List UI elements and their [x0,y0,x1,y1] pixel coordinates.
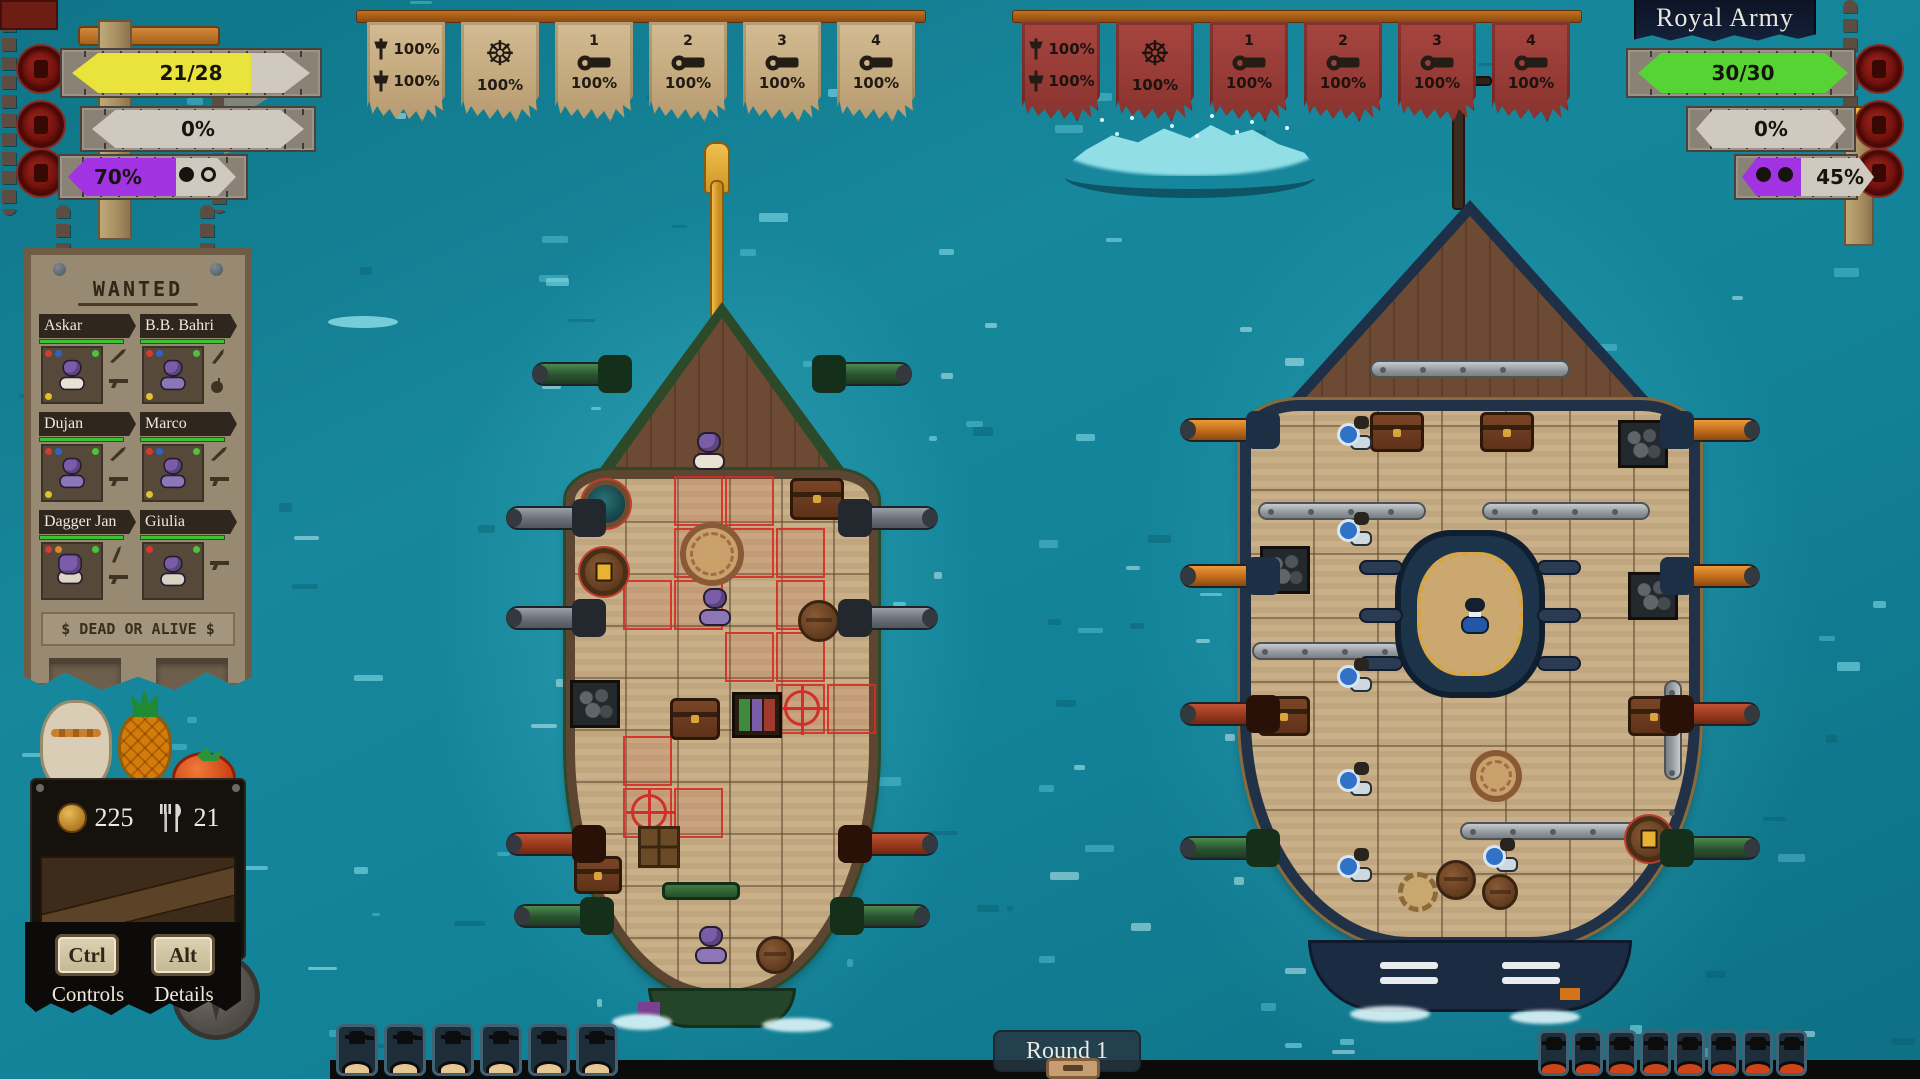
enemy-starboard-cannon[interactable] [1664,698,1760,730]
small-splash [328,316,398,328]
sword-icon [108,446,130,462]
club-icon [108,544,130,564]
enemy-crew-slot[interactable] [1538,1030,1569,1076]
starboard-cannon[interactable] [842,602,938,634]
ship-stern [1308,940,1632,1012]
enemy-port-cannon[interactable] [1180,560,1276,592]
starboard-cannon[interactable] [834,900,930,932]
enemy-crew-slot[interactable] [1572,1030,1603,1076]
highlight-cell[interactable] [725,476,774,526]
enemy-crew-member[interactable] [1342,762,1372,796]
helm-icon: ☸ [1140,34,1170,74]
highlight-cell[interactable] [623,736,672,786]
crew-portrait [41,346,103,404]
hourglass-icon: ⧗ [184,680,199,706]
enemy-crew-slot[interactable] [1674,1030,1705,1076]
highlight-cell[interactable] [674,476,723,526]
foam [612,1014,672,1030]
barrel [798,600,840,642]
foam [1510,1010,1580,1024]
rope-coil [1398,872,1438,912]
enemy-crew-slot[interactable] [1606,1030,1637,1076]
crew-card-daggerjan[interactable]: Dagger Jan [39,510,136,602]
highlight-cell[interactable] [725,632,774,682]
coin-icon [57,803,87,833]
bow-cannon[interactable] [816,358,912,390]
coal-bin [570,680,620,728]
enemy-port-cannon[interactable] [1180,414,1276,446]
helm-banner[interactable]: ☸ 100% [461,22,539,122]
enemy-boarding-bar: 45% [1742,158,1874,196]
title-underline [78,303,198,306]
sails-banner[interactable]: 100% 100% [367,22,445,122]
cannon1-banner[interactable]: 1 100% [1210,22,1288,122]
starboard-cannon[interactable] [842,502,938,534]
dead-or-alive-banner: $ DEAD OR ALIVE $ [41,612,235,646]
cannon-icon [858,50,894,72]
player-boarding-bar: 70% [68,158,236,196]
coin-count: 225 [95,803,134,833]
green-bench [662,882,740,900]
sail-seal-icon [1856,102,1902,148]
details-label: Details [129,982,239,1007]
pistol-icon [108,572,130,586]
enemy-starboard-cannon[interactable] [1664,414,1760,446]
ctrl-key[interactable]: Ctrl [55,934,119,976]
alt-key[interactable]: Alt [151,934,215,976]
helm-station[interactable] [1395,530,1545,698]
attack-target-icon[interactable] [631,794,667,830]
capstan [680,522,744,586]
banner-pole [356,10,926,23]
cannon-icon [670,50,706,72]
bookshelf [732,692,782,738]
player-ship [552,140,892,1035]
sword-icon [209,446,231,462]
food-icon [160,802,186,834]
attack-target-icon[interactable] [784,690,820,726]
enemy-faction-title: Royal Army [1656,0,1794,36]
pistol-icon [209,558,231,572]
sail-seal-icon [18,102,64,148]
metal-walkway [1482,502,1650,520]
wanted-poster: WANTED Askar B.B. Bahri [24,248,252,690]
foam [762,1018,832,1032]
barrel [756,936,794,974]
cannon1-banner[interactable]: 1 100% [555,22,633,122]
crew-portrait [142,542,204,600]
pineapple [118,712,172,782]
crew-health-bar [39,339,124,344]
crew-health-bar [39,437,124,442]
crew-card-askar[interactable]: Askar [39,314,136,406]
cannon2-banner[interactable]: 2 100% [649,22,727,122]
crew-health-bar [39,535,124,540]
starboard-cannon[interactable] [842,828,938,860]
knife-icon [209,348,231,366]
cannon-icon [764,50,800,72]
cannon2-banner[interactable]: 2 100% [1304,22,1382,122]
crew-slot[interactable] [480,1024,522,1076]
crew-portrait [142,444,204,502]
stern-flag [1560,988,1580,1000]
highlight-cell[interactable] [827,684,876,734]
charge-pip-filled [1756,167,1771,182]
bomb-icon [209,376,231,394]
charge-pip-filled [1778,167,1793,182]
stern-ladder [1502,962,1560,984]
helm-banner[interactable]: ☸ 100% [1116,22,1194,122]
chest [1480,412,1534,452]
space-key-button[interactable] [1046,1058,1100,1079]
enemy-ship [1230,60,1710,1045]
charge-pip-empty [201,167,216,182]
enemy-crew-member[interactable] [1342,658,1372,692]
enemy-crew-slot[interactable] [1640,1030,1671,1076]
cannon4-banner[interactable]: 4 100% [837,22,915,122]
enemy-crew-member[interactable] [1488,838,1518,872]
food-count: 21 [194,803,220,833]
sword-icon [108,348,130,364]
enemy-crew-slot[interactable] [1708,1030,1739,1076]
enemy-crew-member[interactable] [1342,512,1372,546]
bow-cannon[interactable] [532,358,628,390]
hull-seal-icon [1856,46,1902,92]
crew-slot[interactable] [432,1024,474,1076]
pistol-icon [209,474,231,488]
port-cannon[interactable] [506,502,602,534]
chain [56,205,70,253]
crew-portrait [142,346,204,404]
highlight-cell[interactable] [674,788,723,838]
cannon4-banner[interactable]: 4 100% [1492,22,1570,122]
cannon-icon [1513,50,1549,72]
enemy-starboard-cannon[interactable] [1664,560,1760,592]
chest [790,478,844,520]
barrel [1436,860,1476,900]
enemy-port-cannon[interactable] [1180,698,1276,730]
crew-card-marco[interactable]: Marco [140,412,237,504]
crew-member[interactable] [698,588,732,626]
pistol-icon [108,376,130,390]
crew-member[interactable] [692,432,726,470]
hull-seal-icon [18,46,64,92]
highlight-cell[interactable] [776,528,825,578]
stern-ladder [1380,962,1438,984]
crew-health-bar [140,535,225,540]
enemy-captain[interactable] [1459,598,1491,634]
crew-slot[interactable] [528,1024,570,1076]
bolt-icon [53,263,66,276]
battle-scene: 21/28 0% 70% 100% 100% ☸ 100% 1 100% [0,0,1920,1079]
crew-slot[interactable] [576,1024,618,1076]
cannon3-banner[interactable]: 3 100% [1398,22,1476,122]
port-cannon[interactable] [506,828,602,860]
crew-member[interactable] [694,926,728,964]
crew-portrait [41,444,103,502]
pistol-icon [108,474,130,488]
enemy-port-cannon[interactable] [1180,832,1276,864]
lantern-barrel [580,548,628,596]
chest [670,698,720,740]
enemy-crew-member[interactable] [1342,416,1372,450]
beam-block [0,0,58,30]
wanted-title: WANTED [31,277,245,301]
crew-health-bar [140,437,225,442]
cannon-icon [1231,50,1267,72]
cannon-icon [1419,50,1455,72]
charge-pip-filled [179,167,194,182]
enemy-crew-member[interactable] [1342,848,1372,882]
player-sail-bar: 0% [92,110,304,148]
enemy-starboard-cannon[interactable] [1664,832,1760,864]
bolt-icon [210,263,223,276]
cannon-icon [576,50,612,72]
chest [1370,412,1424,452]
chain [2,0,16,215]
port-cannon[interactable] [506,602,602,634]
crew-card-giulia[interactable]: Giulia [140,510,237,602]
controls-label: Controls [33,982,143,1007]
banner-pole [1012,10,1582,23]
crew-slot[interactable] [384,1024,426,1076]
enemy-hull-bar: 30/30 [1638,53,1848,93]
enemy-crew-slot[interactable] [1742,1030,1773,1076]
chain [200,205,214,253]
crew-card-dujan[interactable]: Dujan [39,412,136,504]
enemy-faction-banner: Royal Army [1634,0,1816,44]
cannon-icon [1325,50,1361,72]
empty-slot[interactable]: ⧗ [156,658,228,722]
crew-health-bar [140,339,225,344]
helm-icon: ☸ [485,34,515,74]
cannon3-banner[interactable]: 3 100% [743,22,821,122]
port-cannon[interactable] [514,900,610,932]
player-hull-bar: 21/28 [72,53,310,93]
highlight-cell[interactable] [623,580,672,630]
sails-banner[interactable]: 100% 100% [1022,22,1100,122]
crew-portrait [41,542,103,600]
metal-walkway [1370,360,1570,378]
enemy-crew-slot[interactable] [1776,1030,1807,1076]
crew-slot[interactable] [336,1024,378,1076]
rope-coil [1470,750,1522,802]
enemy-sail-bar: 0% [1696,110,1846,148]
crew-card-bbbahri[interactable]: B.B. Bahri [140,314,237,406]
bowsprit-mast [710,180,724,320]
crate [638,826,680,868]
barrel [1482,874,1518,910]
foam [1350,1006,1430,1022]
